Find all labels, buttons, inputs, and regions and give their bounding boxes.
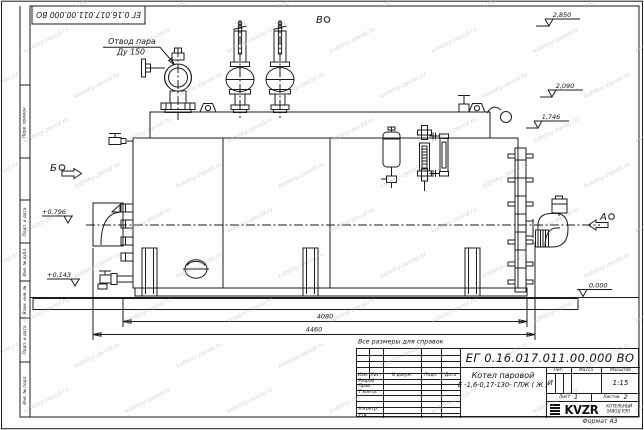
front-plate (508, 148, 533, 292)
left-nozzles (98, 134, 133, 290)
svg-text:2,090: 2,090 (556, 82, 575, 90)
svg-text:Ду 150: Ду 150 (116, 48, 145, 57)
tb-doc-number: ЕГ 0.16.017.011.00.000 ВО (460, 349, 640, 367)
svg-text:+0,796: +0,796 (42, 208, 66, 216)
tb-lit-value: И (546, 373, 555, 393)
tb-row-utv: Утв. (357, 413, 385, 419)
side-label-podp-data-1: Подп. и дата (20, 200, 30, 243)
logo-text: KVZR (565, 402, 599, 417)
burner (526, 196, 568, 247)
tb-sheet: Лист 1 (546, 393, 591, 401)
tb-col-podp: Подп. (421, 373, 441, 379)
svg-text:В: В (316, 15, 323, 26)
svg-text:+0,143: +0,143 (47, 271, 71, 279)
side-label-inv-dubl: Инв. № дубл. (20, 243, 30, 281)
steam-outlet-callout: Отвод пара Ду 150 (103, 37, 175, 65)
side-label-vzam-inv: Взам. инв. № (20, 281, 30, 318)
ground-line (30, 298, 639, 310)
tb-col-ndokum: N докум. (383, 373, 421, 379)
boiler-body (86, 112, 600, 288)
water-gauge-assembly (381, 126, 449, 192)
format-note: Формат А3 (556, 418, 644, 425)
top-fittings (458, 96, 512, 123)
tb-sheets: Листов 2 (591, 393, 640, 401)
svg-text:Отвод пара: Отвод пара (108, 37, 156, 46)
top-left-doc-number: ЕГ 0.16.017.011.00.000 ВО (36, 10, 141, 19)
svg-text:0,000: 0,000 (589, 282, 608, 290)
side-label-podp-data-2: Подп. и дата (20, 318, 30, 362)
svg-text:4080: 4080 (317, 313, 334, 321)
view-marker-v: В (316, 15, 330, 26)
tb-row-tkontr: Т.контр. (357, 390, 385, 396)
view-marker-a: А (589, 212, 615, 230)
tb-scale-value: 1:15 (601, 373, 640, 393)
title-block: Изм. Лист N докум. Подп. Дата Разраб. Пр… (356, 348, 639, 417)
svg-text:4460: 4460 (306, 326, 323, 334)
company-name: КОТЕЛЬНЫЙ ЗАВОД РЭП (606, 405, 632, 414)
side-label-inv-podl: Инв. № подл. (20, 362, 30, 417)
logo-icon (550, 404, 560, 415)
tb-mass-label: Масса (571, 367, 601, 373)
svg-text:1,746: 1,746 (542, 113, 561, 121)
skid-and-supports (135, 248, 527, 296)
svg-text:2,850: 2,850 (553, 11, 572, 19)
tb-product-designation: Е -1,6-0,17-130- ГЛЖ ( Ж ) (460, 380, 546, 390)
svg-text:Б: Б (50, 163, 57, 174)
steam-outlet-valve (142, 48, 196, 120)
side-label-perv-primen: Перв. примен. (20, 85, 30, 158)
reference-note: Все размеры для справок (358, 339, 444, 346)
tb-col-data: Дата (441, 373, 460, 379)
view-marker-b: Б (50, 163, 82, 179)
tb-company: KVZR КОТЕЛЬНЫЙ ЗАВОД РЭП (546, 401, 640, 418)
svg-text:А: А (599, 212, 607, 223)
manhole (183, 260, 209, 278)
drawing-sheet: ЕГ 0.16.017.011.00.000 ВО (0, 0, 644, 430)
safety-valves (226, 20, 294, 118)
